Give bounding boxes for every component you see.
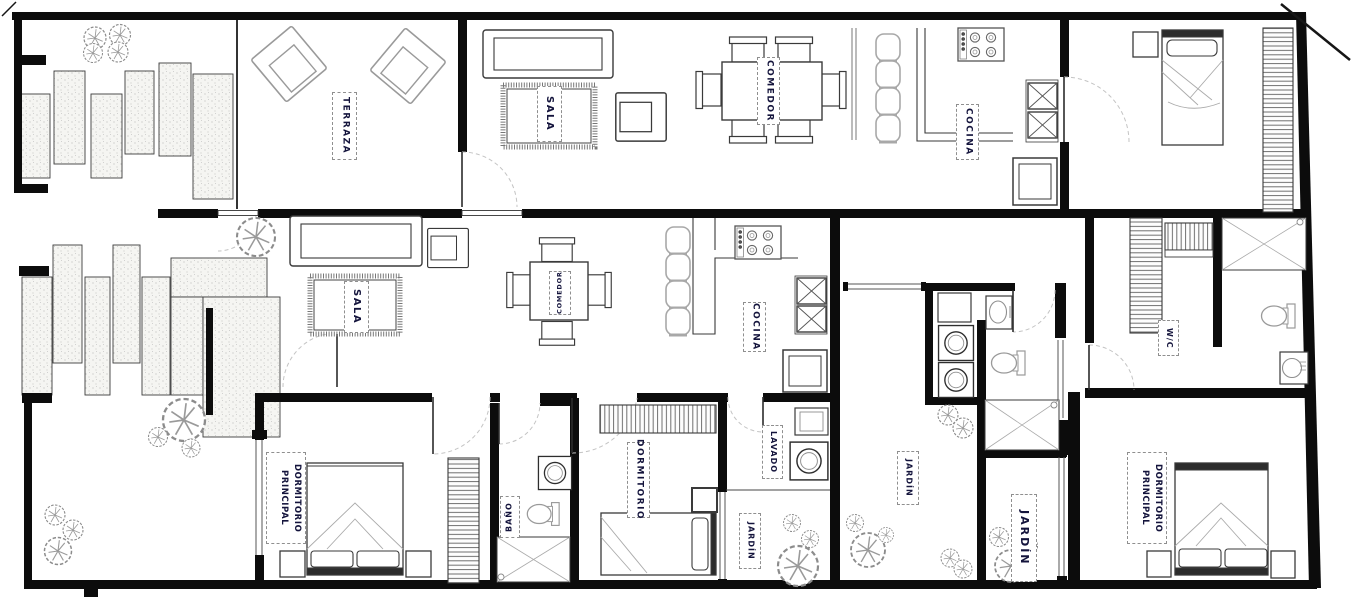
single-bed — [601, 513, 716, 575]
washing-machine — [939, 363, 974, 398]
bar-stool — [876, 115, 900, 142]
shower — [497, 537, 570, 582]
toilet — [992, 351, 1026, 375]
bar-stool — [666, 308, 690, 335]
nightstand — [1271, 551, 1295, 578]
washing-machine — [538, 456, 571, 489]
armchair — [428, 228, 469, 267]
window-dormitorio-principal-left — [254, 440, 264, 555]
nightstand — [1133, 32, 1158, 57]
room-label-comedor-upper: COMEDOR — [757, 57, 780, 125]
room-label-cocina-lower: COCINA — [743, 302, 766, 352]
fridge — [1013, 158, 1057, 205]
stove-icon — [958, 28, 1004, 61]
double-bed — [307, 463, 403, 575]
room-label-sala-lower: SALA — [344, 281, 369, 333]
dormitorio-furniture — [600, 405, 717, 575]
double-bed — [1175, 463, 1268, 575]
room-label-dormitorio-principal-left: DORMITORIO PRINCIPAL — [266, 452, 306, 544]
sofa — [290, 216, 422, 266]
toilet — [527, 503, 559, 526]
garden-pavers — [17, 63, 280, 437]
sofa — [483, 30, 613, 78]
sala-lower-furniture — [290, 216, 468, 334]
room-label-lavado: LAVADO — [762, 425, 783, 479]
room-label-comedor-lower: COMEDOR — [549, 271, 571, 315]
lavado-appliances — [790, 408, 828, 480]
bedroom-upper-right — [1133, 28, 1293, 212]
toilet — [1262, 304, 1296, 328]
cabinet — [938, 293, 971, 322]
stove-icon — [735, 226, 781, 259]
nightstand — [280, 551, 305, 577]
sala-upper-furniture — [483, 30, 666, 147]
bar-stool — [876, 34, 900, 61]
bar-stool — [666, 254, 690, 281]
bar-stool — [666, 281, 690, 308]
window-dormitorio-jardin — [718, 487, 727, 584]
washing-machine — [939, 326, 974, 361]
fridge — [783, 350, 827, 392]
bar-stool — [666, 227, 690, 254]
sink — [1280, 352, 1308, 384]
room-label-dormitorio-principal-right: DORMITORIO PRINCIPAL — [1127, 452, 1167, 544]
single-bed — [1162, 30, 1223, 145]
room-label-jardin-2: JARDÍN — [897, 451, 919, 505]
laundry-sink — [795, 408, 828, 435]
room-label-jardin-1: JARDÍN — [739, 513, 761, 569]
nightstand — [1147, 551, 1171, 577]
shelf — [1165, 250, 1213, 257]
kitchen-sink — [797, 306, 826, 332]
dormitorio-principal-right-furniture — [1147, 463, 1295, 578]
armchair — [616, 93, 666, 141]
sink — [986, 296, 1012, 329]
room-label-dormitorio: DORMITORIO — [627, 442, 650, 518]
closet — [1165, 223, 1213, 250]
lounge-chair — [370, 28, 446, 104]
nightstand — [406, 551, 431, 577]
kitchen-sink — [1028, 112, 1057, 138]
room-label-terraza: TERRAZA — [332, 92, 357, 160]
shower — [1222, 218, 1306, 270]
kitchen-bar-partition — [852, 28, 856, 140]
kitchen-sink — [1028, 83, 1057, 109]
kitchen-sink — [797, 278, 826, 304]
washing-machine — [790, 442, 828, 480]
room-label-wc: W/C — [1158, 320, 1179, 356]
lounge-chair — [251, 26, 327, 102]
window-jardin2-top — [843, 282, 926, 291]
closet — [448, 458, 479, 583]
closet — [1130, 218, 1162, 333]
nightstand — [692, 488, 717, 512]
bar-stool — [876, 88, 900, 115]
closet — [600, 405, 716, 433]
closet — [1263, 28, 1293, 212]
shower — [985, 400, 1059, 450]
room-label-bano: BAÑO — [500, 496, 520, 538]
room-label-sala-upper: SALA — [537, 86, 562, 142]
floor-plan: TERRAZA SALA COMEDOR COCINA SALA COMEDOR… — [0, 0, 1351, 608]
window-jardin3 — [1057, 452, 1067, 581]
room-label-cocina-upper: COCINA — [956, 104, 979, 160]
room-label-jardin-3: JARDÍN — [1011, 494, 1037, 582]
bar-stool — [876, 61, 900, 88]
dormitorio-principal-left-furniture — [280, 458, 479, 583]
